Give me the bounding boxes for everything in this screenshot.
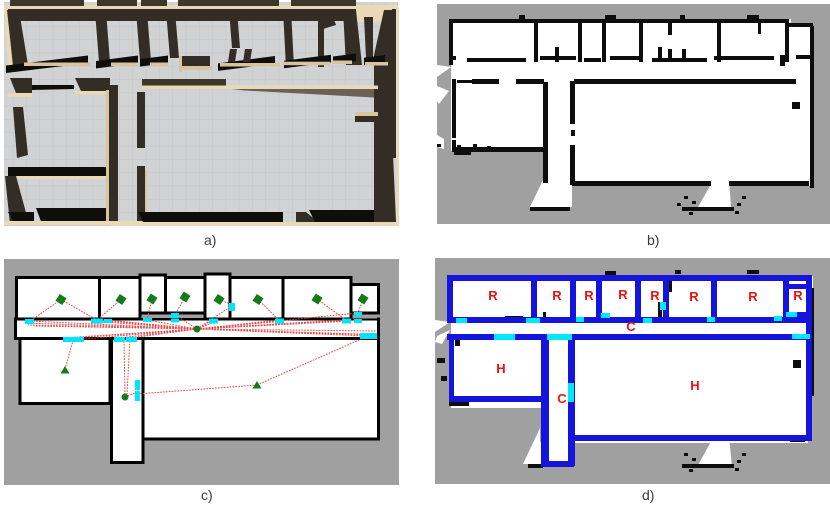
svg-text:R: R — [689, 289, 699, 304]
svg-text:R: R — [552, 288, 562, 303]
svg-text:C: C — [557, 391, 567, 406]
svg-text:R: R — [488, 288, 498, 303]
svg-text:R: R — [793, 288, 803, 303]
svg-text:H: H — [690, 378, 699, 393]
svg-text:R: R — [618, 287, 628, 302]
svg-text:R: R — [584, 288, 594, 303]
svg-text:R: R — [650, 288, 660, 303]
svg-text:R: R — [748, 289, 758, 304]
svg-text:H: H — [496, 361, 505, 376]
svg-text:C: C — [626, 319, 636, 334]
